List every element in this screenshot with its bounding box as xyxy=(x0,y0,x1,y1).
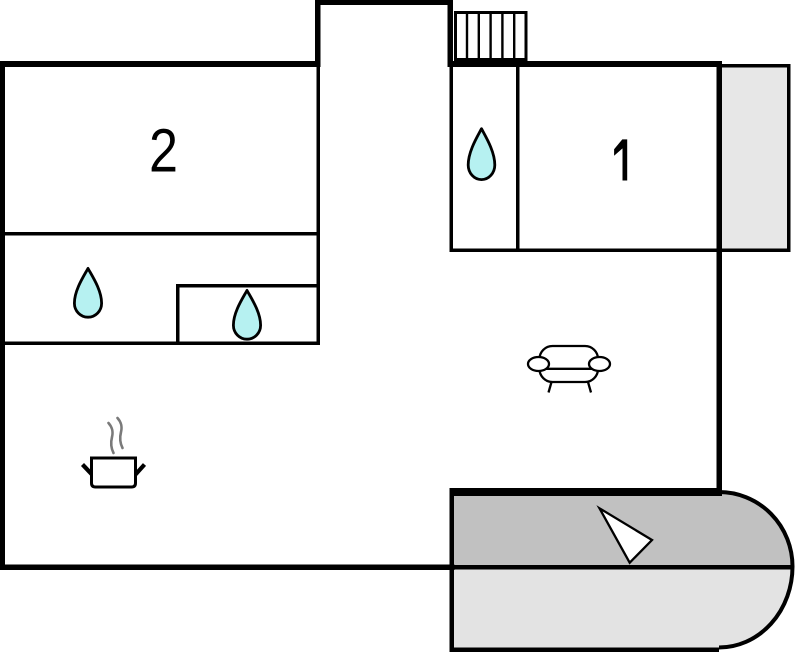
svg-text:2: 2 xyxy=(149,117,178,185)
